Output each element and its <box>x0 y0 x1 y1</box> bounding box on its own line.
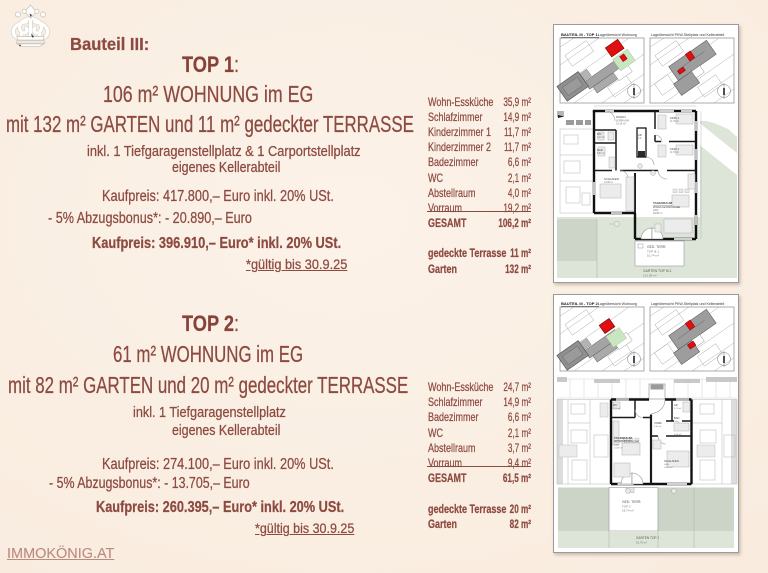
svg-text:WC: WC <box>597 132 602 136</box>
svg-text:WOHN: WOHN <box>616 115 626 119</box>
svg-text:11,70 m²: 11,70 m² <box>670 120 679 123</box>
svg-text:Lageübersicht PKW-Stellplatz u: Lageübersicht PKW-Stellplatz und Kellera… <box>651 302 724 306</box>
svg-text:AR: AR <box>638 133 642 137</box>
svg-text:VORR.: VORR. <box>654 421 662 425</box>
svg-text:Lageübersicht PKW-Stellplatz u: Lageübersicht PKW-Stellplatz und Kellera… <box>651 33 724 37</box>
svg-text:GRG: GRG <box>664 464 669 466</box>
svg-text:BAUTEIL III - TOP 2:: BAUTEIL III - TOP 2: <box>561 301 599 306</box>
svg-text:BAD: BAD <box>674 416 679 420</box>
svg-text:35,86 m²: 35,86 m² <box>653 212 663 215</box>
svg-text:GRG: GRG <box>614 445 619 447</box>
svg-text:9,40 m²: 9,40 m² <box>654 425 662 428</box>
svg-text:AR: AR <box>674 403 678 407</box>
svg-text:SCHLAFEN: SCHLAFEN <box>604 177 619 181</box>
svg-text:GARTEN TOP 2: GARTEN TOP 2 <box>636 536 659 540</box>
svg-text:GED. TERR.: GED. TERR. <box>647 245 666 249</box>
svg-text:GED. TERR.: GED. TERR. <box>622 500 641 504</box>
svg-text:GARTEN TOP III.1: GARTEN TOP III.1 <box>643 269 672 273</box>
svg-text:KIND 2: KIND 2 <box>670 147 679 151</box>
svg-text:WC: WC <box>613 403 617 407</box>
svg-text:81,76 m²: 81,76 m² <box>636 540 647 544</box>
svg-text:2,10 m²: 2,10 m² <box>613 407 621 410</box>
svg-text:Lageübersicht Wohnung: Lageübersicht Wohnung <box>598 33 637 37</box>
svg-text:6,60 m²: 6,60 m² <box>597 152 605 155</box>
svg-text:Lageübersicht Wohnung: Lageübersicht Wohnung <box>598 302 637 306</box>
svg-text:6,60 m²: 6,60 m² <box>674 433 682 436</box>
svg-text:14,90 m²: 14,90 m² <box>604 181 613 184</box>
svg-text:SCHLAFEN: SCHLAFEN <box>664 459 679 463</box>
svg-text:WOHN-ESSKÜCHE: WOHN-ESSKÜCHE <box>614 440 639 444</box>
svg-text:14,90 m²: 14,90 m² <box>664 466 673 469</box>
svg-text:2,10 m²: 2,10 m² <box>597 136 605 139</box>
svg-text:24,68 m²: 24,68 m² <box>614 447 623 450</box>
svg-text:131,38 m²: 131,38 m² <box>643 274 657 278</box>
svg-text:BAUTEIL III - TOP 1:: BAUTEIL III - TOP 1: <box>561 32 599 37</box>
svg-text:11,70 m²: 11,70 m² <box>670 151 679 154</box>
svg-text:3,70 m²: 3,70 m² <box>674 407 682 410</box>
svg-text:10,74 m²: 10,74 m² <box>647 254 659 258</box>
svg-text:19,16 m²: 19,16 m² <box>616 123 626 126</box>
svg-text:BAD: BAD <box>597 148 603 152</box>
svg-text:KIND 1: KIND 1 <box>670 116 679 120</box>
svg-text:19,74 m²: 19,74 m² <box>622 509 634 513</box>
